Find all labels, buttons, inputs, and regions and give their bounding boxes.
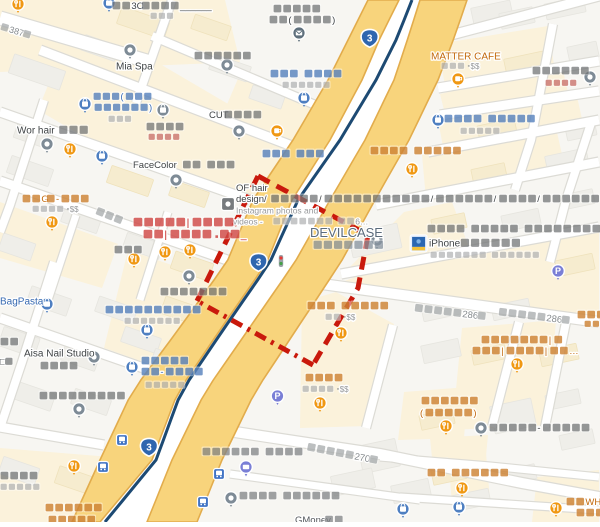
svg-text:MATTER CAFE: MATTER CAFE — [431, 52, 501, 63]
svg-text:/: / — [494, 194, 497, 205]
svg-text:/: / — [319, 194, 322, 205]
svg-text:): ) — [473, 408, 476, 419]
svg-text:|: | — [501, 346, 503, 357]
svg-text:286: 286 — [462, 309, 479, 322]
svg-text:-: - — [537, 423, 540, 434]
svg-text:(: ( — [121, 92, 124, 102]
svg-text:BagPasta: BagPasta — [0, 297, 44, 308]
svg-text:): ) — [149, 103, 152, 113]
svg-text:|: | — [187, 217, 190, 229]
svg-text:Aisa Nail Studio: Aisa Nail Studio — [24, 349, 95, 360]
svg-text:FaceColor: FaceColor — [133, 160, 177, 171]
svg-text:_: _ — [240, 229, 247, 241]
svg-text:): ) — [332, 15, 335, 26]
svg-text:$$: $$ — [70, 205, 79, 214]
svg-text:|: | — [549, 335, 551, 346]
svg-text:-: - — [160, 367, 163, 378]
svg-text:WHA: WHA — [585, 497, 600, 508]
svg-text:/: / — [431, 194, 434, 205]
svg-text:Instagram photos and: Instagram photos and — [236, 205, 318, 215]
svg-text:|: | — [164, 229, 167, 241]
svg-text:$$: $$ — [346, 313, 355, 322]
svg-text:286: 286 — [546, 313, 563, 326]
svg-text:Wor hair: Wor hair — [17, 126, 55, 137]
svg-text:P: P — [274, 391, 280, 401]
svg-text:3: 3 — [146, 443, 152, 454]
svg-text:$$: $$ — [340, 385, 349, 394]
svg-text:|: | — [545, 346, 547, 357]
svg-text:videos -: videos - — [233, 216, 263, 226]
svg-text:iPhone: iPhone — [429, 239, 461, 250]
svg-text:Mia Spa: Mia Spa — [116, 62, 153, 73]
svg-text:OF hair: OF hair — [236, 183, 268, 194]
svg-text:3: 3 — [256, 258, 262, 269]
svg-text:______: ______ — [179, 1, 212, 12]
svg-text:P: P — [555, 266, 561, 276]
svg-text:…: … — [569, 346, 579, 357]
svg-text:3: 3 — [367, 34, 373, 45]
svg-text:design/: design/ — [236, 194, 267, 205]
svg-text:DEVILCASE: DEVILCASE — [310, 225, 383, 240]
svg-text:-: - — [56, 194, 59, 205]
svg-text:$$: $$ — [471, 62, 480, 71]
svg-text:/: / — [537, 194, 540, 205]
